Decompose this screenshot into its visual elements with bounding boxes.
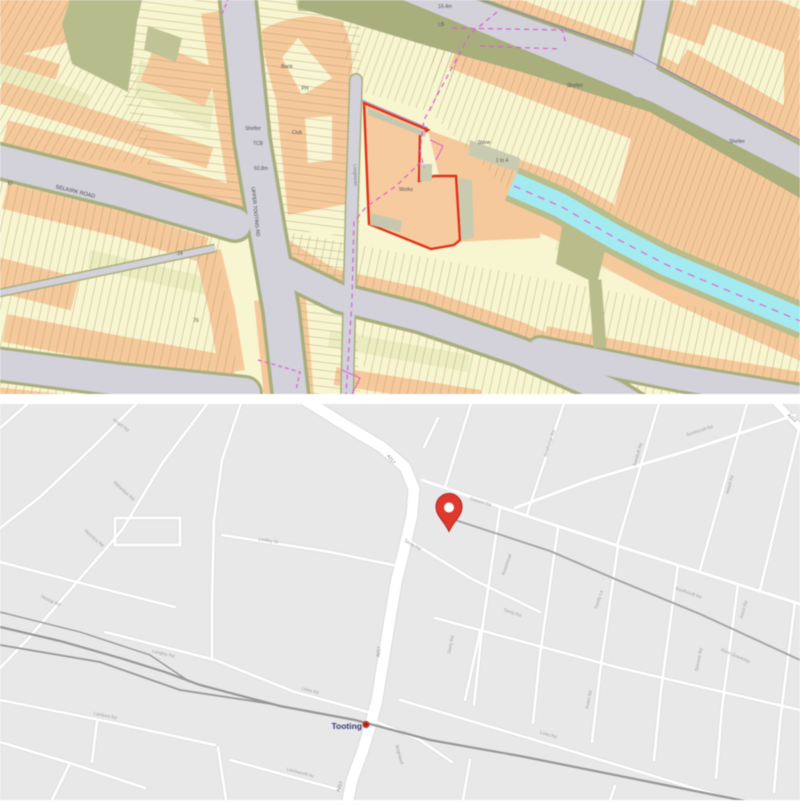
svg-text:Longmead: Longmead xyxy=(353,164,359,186)
svg-text:El: El xyxy=(8,181,12,187)
svg-text:Shelter: Shelter xyxy=(729,139,745,145)
svg-text:50.8m: 50.8m xyxy=(254,166,268,172)
svg-text:24: 24 xyxy=(177,251,183,257)
svg-text:1 to 4: 1 to 4 xyxy=(496,158,509,164)
svg-text:Shelter: Shelter xyxy=(567,83,583,89)
svg-text:Stone: Stone xyxy=(477,140,490,146)
svg-text:PH: PH xyxy=(302,86,309,92)
svg-text:Works: Works xyxy=(399,187,414,193)
svg-text:76: 76 xyxy=(193,318,199,324)
svg-text:Bank: Bank xyxy=(281,64,293,70)
svg-text:Tooting: Tooting xyxy=(331,721,362,731)
svg-text:TCB: TCB xyxy=(253,141,264,147)
svg-text:LB: LB xyxy=(438,22,445,28)
svg-text:Club: Club xyxy=(292,130,303,136)
svg-text:Shelter: Shelter xyxy=(245,126,261,132)
svg-text:16.4m: 16.4m xyxy=(438,4,452,10)
